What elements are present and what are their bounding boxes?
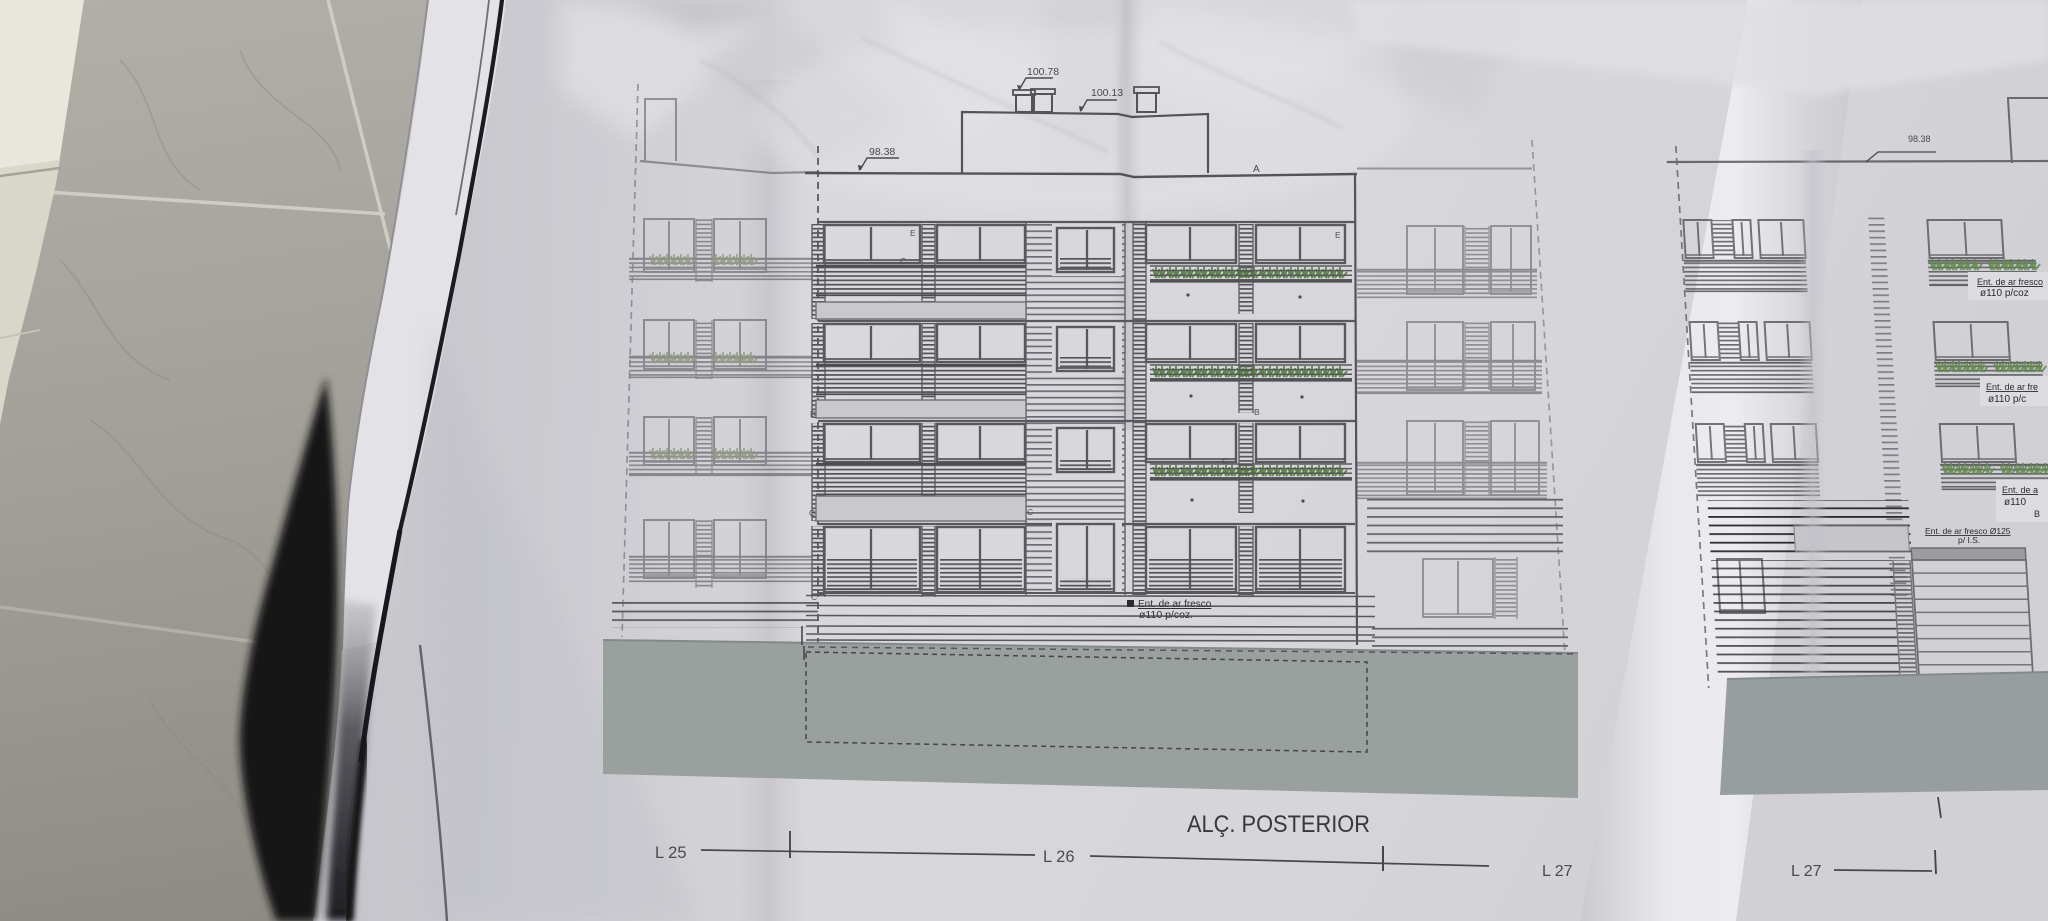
svg-text:100.13: 100.13: [1091, 87, 1123, 99]
svg-text:ø110 p/c: ø110 p/c: [1988, 394, 2026, 405]
svg-text:ø110 p/coz.: ø110 p/coz.: [1139, 609, 1193, 621]
svg-text:A: A: [1253, 164, 1260, 175]
svg-text:ø110 p/coz: ø110 p/coz: [1980, 288, 2029, 299]
svg-text:B: B: [1254, 407, 1260, 417]
svg-text:p/ I.S.: p/ I.S.: [1958, 535, 1980, 545]
svg-text:C: C: [1222, 456, 1228, 466]
svg-text:Ent. de ar fre: Ent. de ar fre: [1986, 382, 2038, 392]
svg-text:C: C: [811, 592, 817, 602]
svg-text:L 26: L 26: [1043, 848, 1075, 866]
svg-text:L 27: L 27: [1542, 863, 1573, 880]
svg-text:E: E: [1335, 230, 1341, 240]
svg-text:ALÇ. POSTERIOR: ALÇ. POSTERIOR: [1187, 811, 1370, 838]
svg-text:L 27: L 27: [1791, 863, 1822, 880]
svg-text:98.38: 98.38: [1908, 134, 1931, 144]
svg-text:98.38: 98.38: [869, 146, 895, 158]
svg-text:Ent. de ar fresco: Ent. de ar fresco: [1977, 277, 2043, 287]
svg-text:C: C: [809, 508, 815, 518]
svg-text:100.78: 100.78: [1027, 66, 1059, 78]
svg-text:C: C: [1027, 507, 1033, 517]
svg-text:L 25: L 25: [655, 844, 687, 862]
svg-text:B: B: [810, 409, 816, 419]
svg-text:Ent. de a: Ent. de a: [2002, 485, 2038, 495]
svg-text:B: B: [2034, 509, 2040, 519]
svg-text:E: E: [910, 228, 916, 238]
svg-text:ø110: ø110: [2004, 497, 2026, 508]
svg-text:C: C: [900, 256, 906, 266]
